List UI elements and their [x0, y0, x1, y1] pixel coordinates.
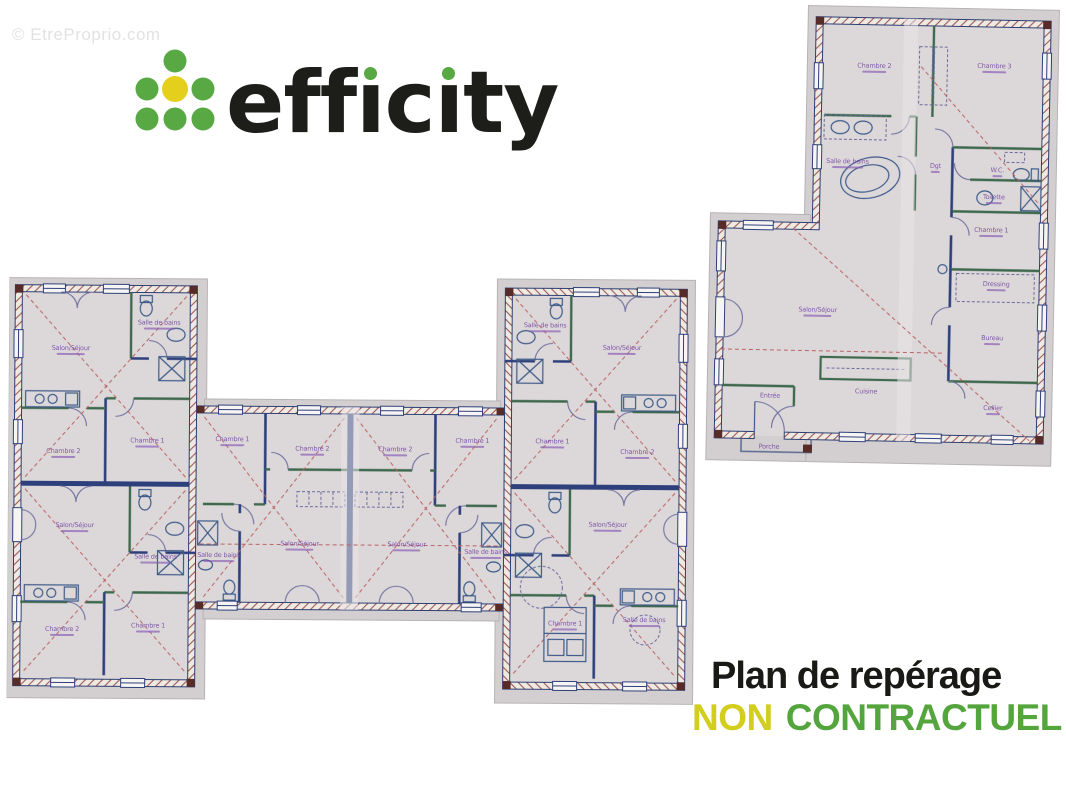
- room-label-salon-s-jour: Salon/Séjour: [798, 306, 837, 317]
- annex-plan-labels: Chambre 2Chambre 3Salle de bainsDgtW.C.T…: [699, 3, 1066, 478]
- room-label-cellier: Cellier: [983, 405, 1002, 415]
- room-label-salon-s-jour: Salon/Séjour: [603, 345, 642, 355]
- room-label-salon-s-jour: Salon/Séjour: [55, 522, 94, 532]
- room-label-salon-s-jour: Salon/Séjour: [387, 541, 426, 551]
- room-label-chambre-1: Chambre 1: [974, 227, 1008, 238]
- caption-line2: NON CONTRACTUEL: [692, 697, 1062, 739]
- room-label-chambre-2: Chambre 2: [378, 446, 412, 456]
- room-label-entr-e: Entrée: [760, 392, 780, 399]
- room-label-chambre-2: Chambre 2: [295, 446, 329, 456]
- room-label-salon-s-jour: Salon/Séjour: [588, 522, 627, 532]
- caption-contractuel: CONTRACTUEL: [786, 697, 1062, 739]
- room-label-salle-de-bains: Salle de bains: [138, 319, 181, 329]
- room-label-salle-de-bains: Salle de bains: [134, 553, 177, 563]
- efficity-logo-dots-icon: [133, 44, 217, 134]
- watermark: © EtreProprio.com: [12, 25, 161, 45]
- room-label-chambre-1: Chambre 1: [535, 438, 569, 448]
- caption-non: NON: [692, 697, 773, 739]
- room-label-salle-de-bains: Salle de bains: [197, 552, 240, 562]
- room-label-chambre-1: Chambre 1: [130, 437, 164, 447]
- room-label-salle-de-bains: Salle de bains: [623, 617, 666, 627]
- room-label-salle-de-bains: Salle de bains: [464, 549, 507, 559]
- room-label-bureau: Bureau: [981, 335, 1003, 345]
- room-label-chambre-1: Chambre 1: [131, 622, 165, 632]
- room-label-cuisine: Cuisine: [855, 388, 878, 395]
- room-label-toilette: Toilette: [983, 194, 1005, 204]
- room-label-chambre-3: Chambre 3: [977, 63, 1011, 74]
- page: © EtreProprio.com effıcıty: [0, 0, 1066, 800]
- room-label-porche: Porche: [759, 443, 780, 450]
- room-label-chambre-1: Chambre 1: [455, 438, 489, 448]
- floor-plan-annex: Chambre 2Chambre 3Salle de bainsDgtW.C.T…: [699, 3, 1066, 478]
- floor-plan-main: Salon/SéjourSalle de bainsChambre 1Chamb…: [7, 274, 702, 707]
- room-label-chambre-2: Chambre 2: [46, 448, 80, 458]
- room-label-chambre-2: Chambre 2: [45, 626, 79, 636]
- logo-text: effıcıty: [226, 60, 558, 146]
- room-label-chambre-2: Chambre 2: [620, 449, 654, 459]
- room-label-dgt: Dgt: [930, 163, 941, 173]
- room-label-salon-s-jour: Salon/Séjour: [52, 345, 91, 355]
- room-label-chambre-2: Chambre 2: [857, 62, 891, 73]
- room-label-dressing: Dressing: [983, 281, 1010, 292]
- main-plan-labels: Salon/SéjourSalle de bainsChambre 1Chamb…: [7, 274, 702, 707]
- room-label-salle-de-bains: Salle de bains: [524, 322, 567, 332]
- room-label-salon-s-jour: Salon/Séjour: [280, 540, 319, 550]
- room-label-salle-de-bains: Salle de bains: [826, 158, 869, 169]
- room-label-chambre-1: Chambre 1: [548, 620, 582, 630]
- room-label-w-c: W.C.: [990, 167, 1004, 177]
- room-label-chambre-1: Chambre 1: [215, 436, 249, 446]
- caption-line1: Plan de repérage: [711, 655, 1001, 698]
